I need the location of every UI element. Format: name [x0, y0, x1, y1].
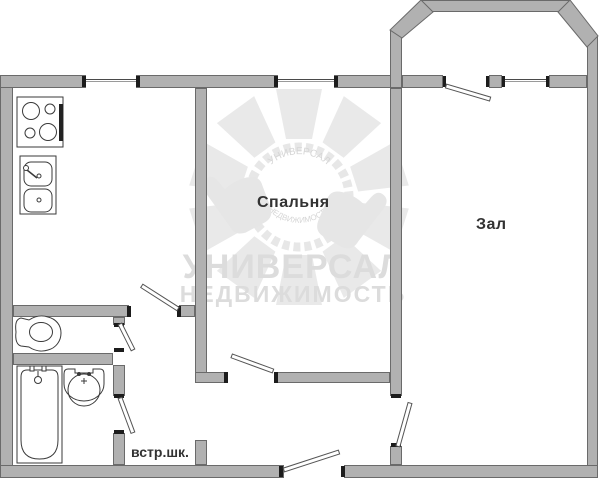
- door-jamb: [443, 76, 446, 87]
- watermark-logo: УНИВЕРСАЛ НЕДВИЖИМОСТЬ УНИВЕРСАЛ НЕДВИЖИ…: [0, 0, 600, 480]
- hall-door-leaf: [396, 402, 412, 446]
- kitchen-window: [86, 79, 136, 82]
- wall-bay-pillar: [489, 75, 502, 88]
- window-cap: [334, 76, 338, 87]
- wall-outer-right: [587, 36, 598, 478]
- wall-bath-right-top: [113, 365, 125, 396]
- wall-kitchen-right: [195, 88, 207, 383]
- wall-bottom-left: [0, 465, 284, 478]
- balcony-door-leaf: [445, 84, 490, 101]
- door-jamb: [177, 306, 181, 317]
- bathtub-icon: [17, 366, 62, 463]
- wall-wc-bath-divider: [13, 353, 113, 365]
- wall-wardrobe-stub: [195, 440, 207, 465]
- kitchen-sink-icon: [20, 156, 56, 214]
- wall-bay-left-vertical: [390, 30, 402, 88]
- wall-top-middle: [136, 75, 278, 88]
- window-cap: [546, 76, 549, 87]
- wardrobe-label: встр.шк.: [131, 444, 189, 460]
- door-jamb: [391, 394, 401, 398]
- wall-kitchen-bottom: [13, 305, 129, 317]
- bath-sink-icon: [64, 369, 104, 406]
- door-jamb: [114, 323, 124, 327]
- wall-hall-left-stub: [390, 446, 402, 465]
- entrance-door-leaf: [283, 450, 339, 472]
- bedroom-door-leaf: [231, 354, 274, 373]
- bedroom-window: [278, 79, 334, 82]
- floor-plan: УНИВЕРСАЛ НЕДВИЖИМОСТЬ УНИВЕРСАЛ НЕДВИЖИ…: [0, 0, 600, 480]
- wall-bath-right-bottom: [113, 433, 125, 465]
- wall-bay-sill-left: [402, 75, 443, 88]
- hall-label: Зал: [476, 216, 507, 234]
- svg-text:УНИВЕРСАЛ: УНИВЕРСАЛ: [266, 146, 332, 167]
- watermark-title: УНИВЕРСАЛ: [183, 248, 404, 286]
- wall-bedroom-bottom-right: [276, 372, 390, 383]
- door-jamb: [114, 430, 124, 434]
- watermark-subtitle: НЕДВИЖИМОСТЬ: [180, 281, 406, 307]
- door-jamb: [274, 372, 278, 383]
- wall-hall-left: [390, 88, 402, 396]
- kitchen-door-leaf: [141, 284, 179, 311]
- thumbs-up-right-icon: [310, 171, 390, 256]
- wall-bay-top: [421, 0, 570, 12]
- wall-kitchen-bottom-stub: [179, 305, 195, 317]
- toilet-icon: [16, 316, 61, 351]
- bathroom-door-leaf: [118, 397, 135, 433]
- wall-outer-left: [0, 75, 13, 478]
- wall-top-kitchen-left: [0, 75, 86, 88]
- door-jamb: [486, 76, 489, 87]
- wc-door-leaf: [118, 323, 135, 351]
- door-jamb: [341, 466, 345, 477]
- door-jamb: [114, 348, 124, 352]
- door-jamb: [114, 394, 124, 398]
- window-cap: [136, 76, 140, 87]
- door-jamb: [127, 306, 131, 317]
- fixtures-layer: [0, 0, 600, 480]
- wall-bay-sill-right: [549, 75, 587, 88]
- wall-bottom-right: [344, 465, 598, 478]
- door-jamb: [391, 443, 401, 447]
- window-cap: [274, 76, 278, 87]
- bay-window: [505, 79, 546, 82]
- bedroom-label: Спальня: [257, 194, 330, 212]
- window-cap: [82, 76, 86, 87]
- window-cap: [502, 76, 505, 87]
- door-jamb: [279, 466, 283, 477]
- stove-icon: [17, 97, 63, 147]
- door-jamb: [224, 372, 228, 383]
